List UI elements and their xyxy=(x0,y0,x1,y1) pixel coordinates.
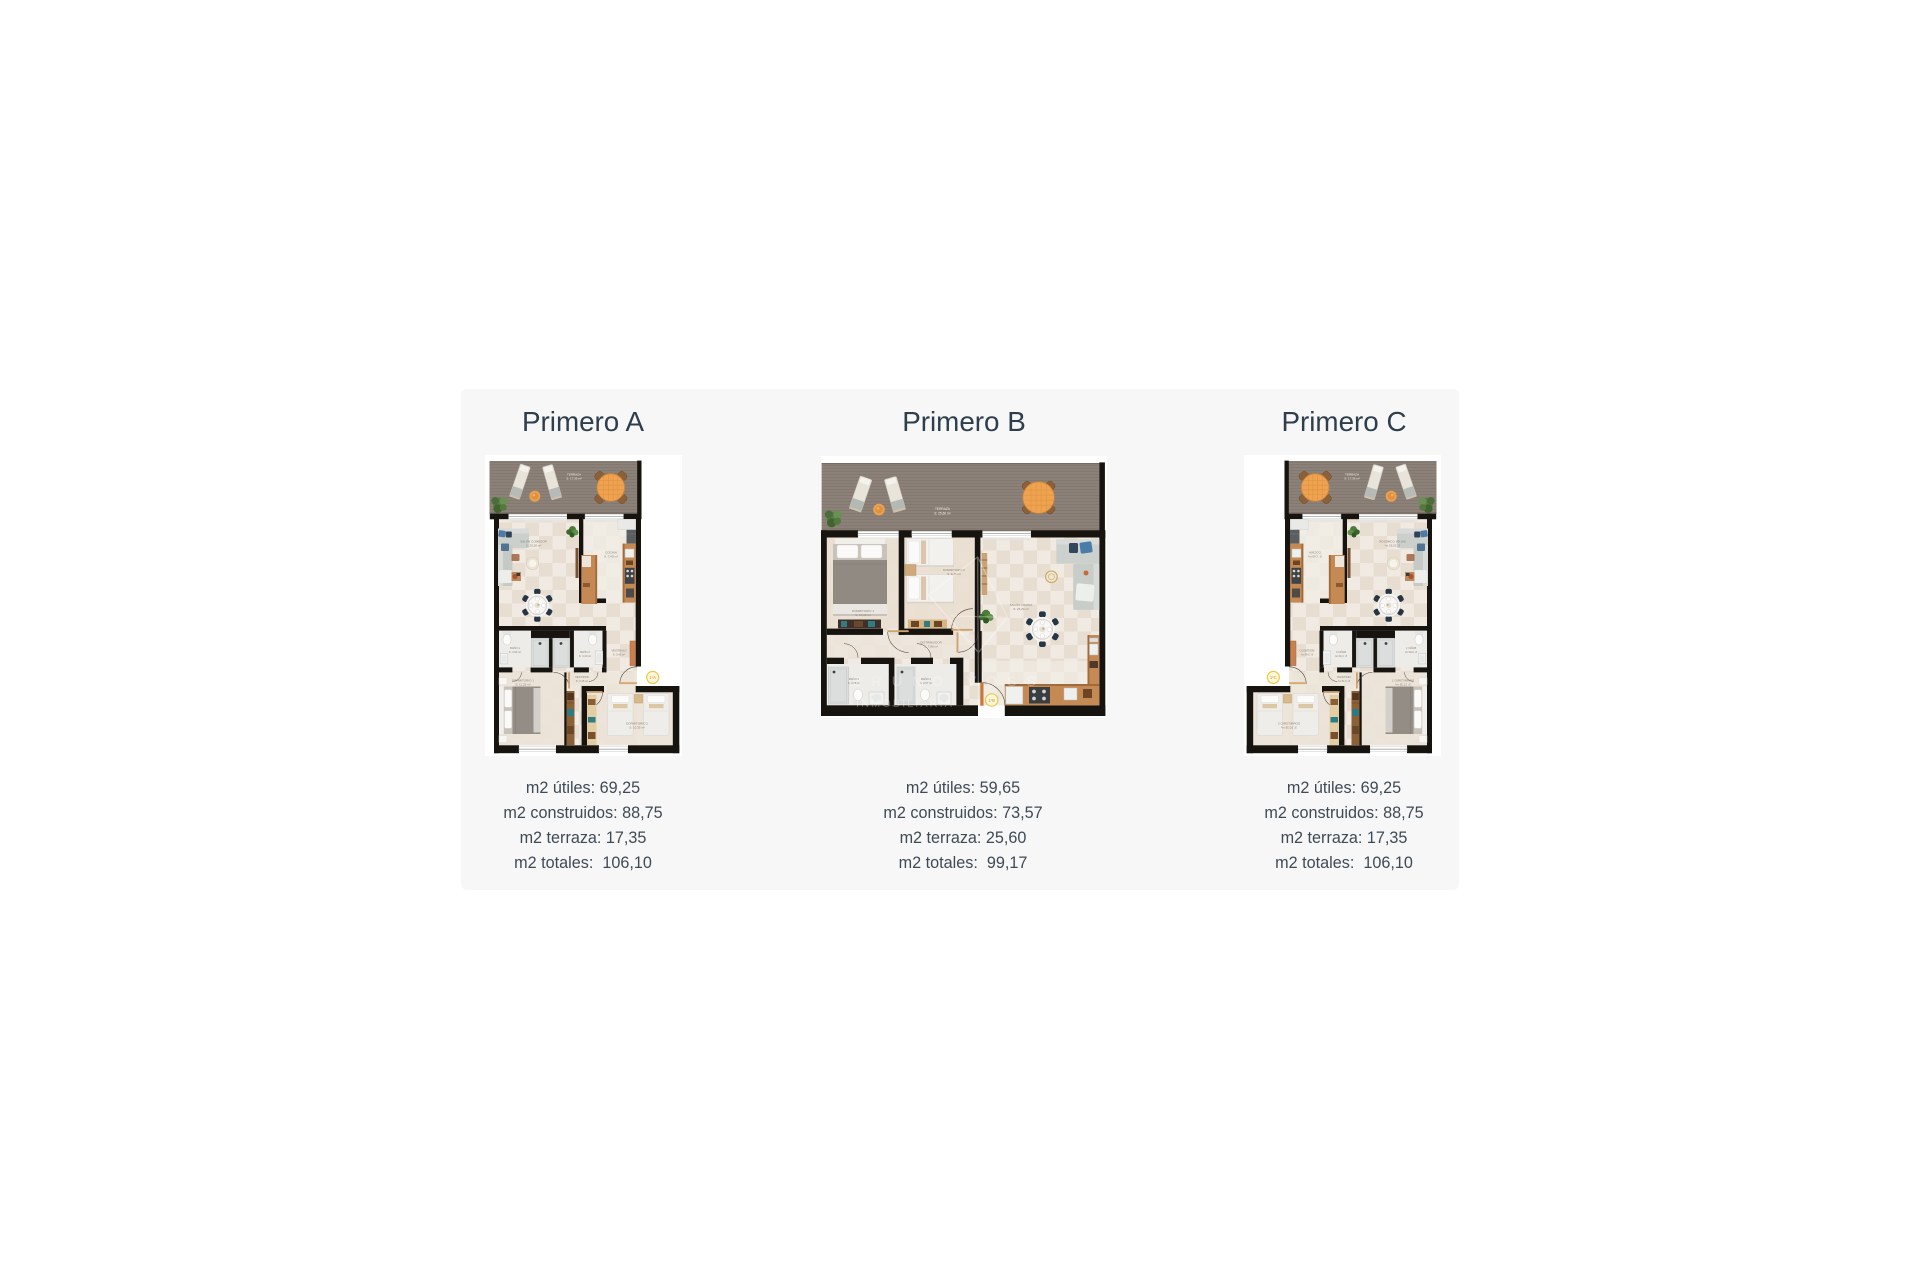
svg-text:1ºC: 1ºC xyxy=(1270,675,1277,680)
svg-text:S: 25,60 m²: S: 25,60 m² xyxy=(934,511,950,515)
svg-text:TERRAZA: TERRAZA xyxy=(935,507,951,511)
svg-text:S: 10,15 m²: S: 10,15 m² xyxy=(855,613,871,617)
svg-text:INMOBILIARIA: INMOBILIARIA xyxy=(856,698,954,710)
svg-text:S: 26,20 m²: S: 26,20 m² xyxy=(1013,607,1029,611)
svg-text:1ºA: 1ºA xyxy=(649,675,656,680)
svg-text:BRUNO VOSS: BRUNO VOSS xyxy=(852,673,1045,689)
svg-text:S: 17,35 m²: S: 17,35 m² xyxy=(1344,477,1360,481)
svg-text:S: 7,80 m²: S: 7,80 m² xyxy=(924,644,938,648)
svg-text:S: 17,35 m²: S: 17,35 m² xyxy=(566,477,582,481)
svg-text:1ºB: 1ºB xyxy=(988,698,995,703)
